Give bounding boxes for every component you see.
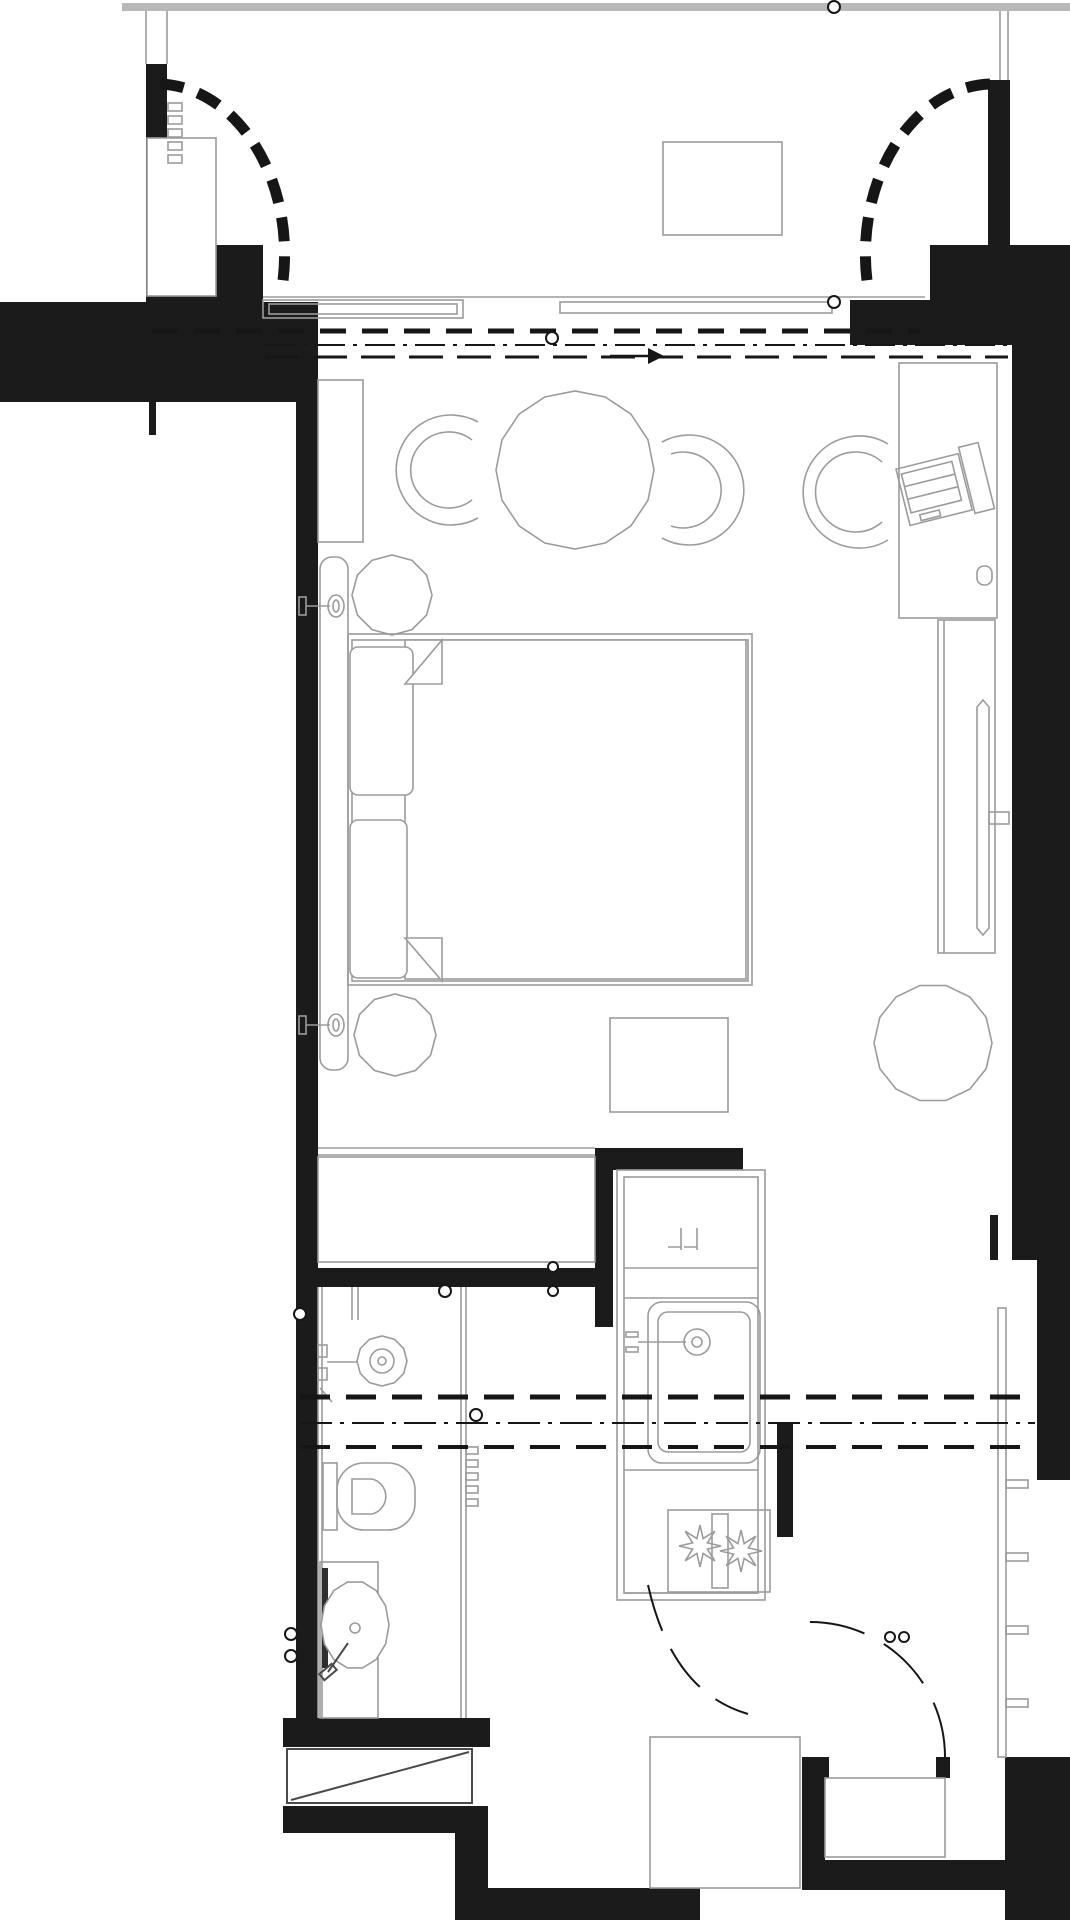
- bottom-right-block: [1005, 1757, 1070, 1920]
- direction-arrow-icon-head: [648, 348, 664, 364]
- entry-threshold: [825, 1778, 945, 1857]
- toilet-icon-seat: [352, 1479, 386, 1514]
- hinge-circle-icon-basin-b: [285, 1650, 297, 1662]
- dining-chair-left-outer: [396, 415, 478, 525]
- hinge-circle-icon-hall-b: [899, 1632, 909, 1642]
- bath-north-wall: [313, 1268, 613, 1287]
- appliance-mark-1: [668, 1228, 681, 1250]
- coat-hook-icon-entry-2: [1006, 1553, 1028, 1561]
- left-exterior-wall: [296, 302, 318, 1718]
- pouf: [874, 986, 992, 1101]
- coat-hook-icon-bath-3: [466, 1473, 478, 1480]
- faucet-icon-handle-b: [626, 1347, 638, 1352]
- laptop-icon-keyboard: [901, 461, 961, 512]
- left-wall-tick: [149, 402, 156, 435]
- toilet-icon-tank: [323, 1463, 337, 1530]
- closet-run: [318, 1157, 595, 1262]
- dining-chair-left-inner: [411, 432, 472, 508]
- top-right-corner-wall: [930, 245, 1070, 302]
- entry-bottom-band: [802, 1860, 1005, 1890]
- coat-hook-icon-bath-5: [466, 1499, 478, 1506]
- tv-console: [938, 620, 995, 953]
- shoe-wedge-diagonal: [291, 1752, 469, 1800]
- hall-square: [650, 1737, 800, 1888]
- wall-sconce-icon-top-knob: [328, 595, 344, 617]
- hinge-circle-icon-wc-a: [548, 1262, 558, 1272]
- balcony-door-comb-3: [168, 129, 182, 137]
- balcony-door-comb-2: [168, 116, 182, 124]
- hinge-circle-icon-wc-b: [548, 1286, 558, 1296]
- balcony-right-wall: [988, 80, 1010, 245]
- appliance-mark-2: [684, 1228, 697, 1250]
- tv-icon-bracket: [989, 812, 1009, 824]
- bottom-band-left: [283, 1806, 478, 1833]
- wall-sconce-icon-bottom-knob: [328, 1014, 344, 1036]
- bed-duvet: [405, 640, 746, 979]
- laptop-icon-base: [896, 454, 972, 526]
- hinge-circle-icon-kitchen: [439, 1285, 451, 1297]
- dining-chair-right-outer: [662, 435, 744, 545]
- wall-sconce-icon-bottom-core: [333, 1019, 339, 1031]
- entry-door-swing-arc: [810, 1622, 945, 1757]
- washbasin-icon: [321, 1582, 389, 1668]
- cooktop-burner-icon-2: [720, 1530, 762, 1572]
- cooktop: [668, 1510, 770, 1592]
- right-wall-lower: [1037, 1260, 1070, 1480]
- floor-plan-canvas: [0, 0, 1070, 1920]
- toilet-icon-bowl: [337, 1463, 415, 1530]
- divider-wall-vertical: [595, 1148, 613, 1327]
- bed-pillow-1: [350, 647, 413, 795]
- sink-icon-outer: [648, 1302, 760, 1463]
- sink-icon-inner: [658, 1312, 750, 1452]
- wardrobe: [318, 380, 363, 542]
- laptop-icon-kb-line2: [908, 487, 958, 500]
- coat-hook-icon-bath-2: [466, 1460, 478, 1467]
- bed-pillow-2: [350, 820, 407, 978]
- right-exterior-wall: [1012, 345, 1070, 1260]
- laptop-icon-kb-line1: [904, 474, 954, 487]
- dining-table: [496, 391, 654, 549]
- coat-hook-icon-entry-4: [1006, 1699, 1028, 1707]
- hinge-circle-icon-corridor: [470, 1409, 482, 1421]
- hinge-circle-icon-top-edge: [828, 1, 840, 13]
- balcony-door-comb-5: [168, 155, 182, 163]
- faucet-icon-handle-a: [626, 1332, 638, 1337]
- kitchen-stub-wall: [777, 1423, 793, 1537]
- balcony-door-comb-1: [168, 103, 182, 111]
- kitchen-unit-inner: [624, 1177, 758, 1593]
- coat-hook-icon-bath-4: [466, 1486, 478, 1493]
- bottom-band-mid: [455, 1888, 700, 1920]
- headboard-panel: [320, 557, 348, 1070]
- shower-head-icon-mid: [370, 1349, 394, 1373]
- entry-jamb-left: [815, 1757, 829, 1778]
- desk: [899, 363, 997, 618]
- coat-hook-icon-entry-1: [1006, 1480, 1028, 1488]
- tv-icon: [977, 700, 989, 935]
- wc-door-swing-arc: [648, 1585, 748, 1714]
- faucet-icon-head: [684, 1329, 710, 1355]
- balcony-table: [663, 142, 782, 235]
- sliding-door-panel-right: [560, 302, 832, 313]
- bath-south-wall: [283, 1718, 490, 1747]
- bedside-stool-bottom: [354, 994, 436, 1076]
- door-jamb-right: [990, 1215, 998, 1260]
- mouse-icon: [977, 566, 992, 585]
- hinge-circle-icon-hall-a: [885, 1632, 895, 1642]
- top-right-wall-bar: [850, 300, 1070, 345]
- faucet-icon-head-core: [692, 1337, 702, 1347]
- hinge-circle-icon-bathwall: [294, 1308, 306, 1320]
- cooktop-burner-icon-1: [679, 1525, 721, 1567]
- balcony-door-comb-4: [168, 142, 182, 150]
- shower-head-icon-outer: [357, 1336, 407, 1386]
- ottoman-bench: [610, 1018, 728, 1112]
- coat-hook-icon-entry-3: [1006, 1626, 1028, 1634]
- hinge-circle-icon-track: [546, 332, 558, 344]
- hinge-circle-icon-slider: [828, 296, 840, 308]
- bedside-stool-top: [352, 555, 432, 635]
- shower-head-icon-dot: [378, 1357, 386, 1365]
- floor-plan-drawing: [0, 0, 1070, 1920]
- wall-sconce-icon-top-core: [333, 600, 339, 612]
- entry-jamb-right: [936, 1757, 950, 1778]
- entry-closet-panel: [998, 1308, 1006, 1757]
- divider-wall-horizontal: [595, 1148, 743, 1170]
- balcony-top-edge: [122, 3, 1070, 11]
- hinge-circle-icon-basin-a: [285, 1628, 297, 1640]
- desk-chair-inner: [816, 452, 882, 532]
- dining-chair-right-inner: [671, 452, 721, 528]
